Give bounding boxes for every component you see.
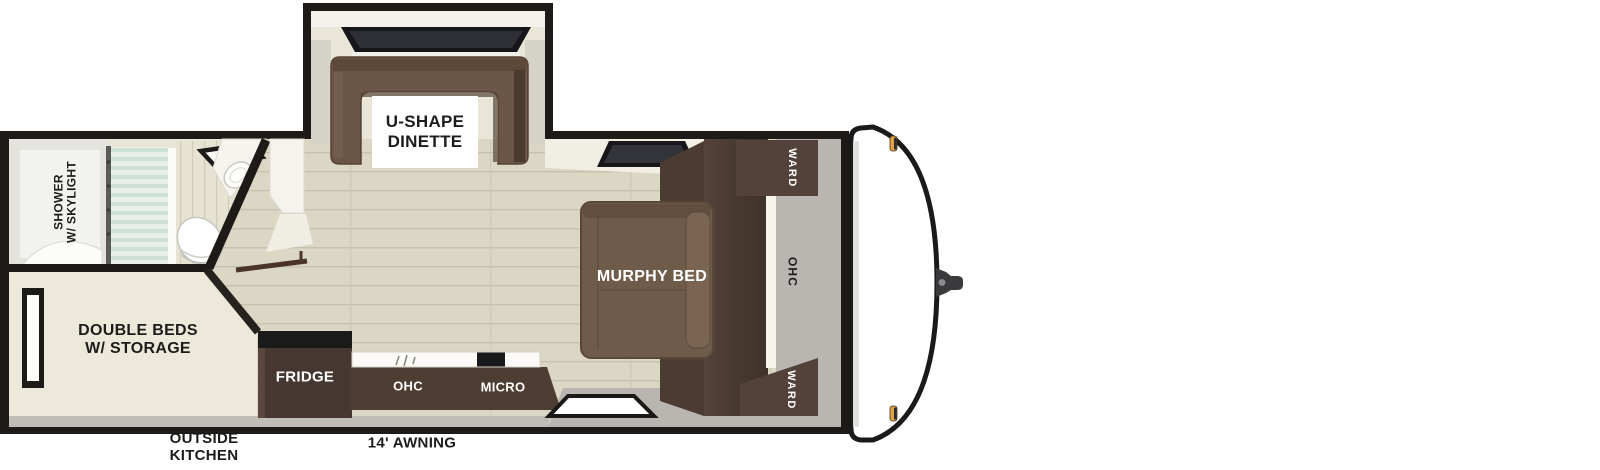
- kitchen-counter: [352, 352, 540, 367]
- entry-step: [549, 396, 654, 416]
- micro-label: MICRO: [481, 381, 526, 396]
- ohc-strip: [766, 190, 776, 368]
- fridge-label: FRIDGE: [276, 370, 334, 387]
- ward-cabinet-top: [736, 140, 818, 196]
- shower-glass: [110, 147, 168, 264]
- dinette-label: U-SHAPE DINETTE: [372, 96, 478, 168]
- double-beds-label: DOUBLE BEDS W/ STORAGE: [78, 322, 198, 358]
- murphy-bed-label: MURPHY BED: [597, 268, 707, 286]
- awning-label: 14' AWNING: [368, 436, 457, 453]
- kitchen-cabinet: [350, 367, 561, 410]
- kitchen-ohc-label: OHC: [393, 380, 423, 395]
- floorplan-drawing: [0, 0, 1600, 470]
- dinette-label-line1: U-SHAPE: [386, 112, 465, 132]
- outside-kitchen-label: OUTSIDE KITCHEN: [170, 431, 239, 465]
- cooktop: [477, 353, 505, 367]
- floorplan-canvas: U-SHAPE DINETTE SHOWER W/ SKYLIGHT DOUBL…: [0, 0, 1600, 470]
- ward-bottom-label: WARD: [785, 370, 797, 410]
- dinette-label-line2: DINETTE: [388, 132, 463, 152]
- wardrobe-column: [270, 139, 304, 213]
- ward-top-label: WARD: [786, 148, 798, 188]
- front-cap: [851, 127, 963, 440]
- shower-label: SHOWER W/ SKYLIGHT: [53, 161, 80, 243]
- bathroom-wall: [0, 264, 211, 273]
- front-ohc-label: OHC: [785, 257, 798, 287]
- marker-light-bottom: [890, 406, 897, 421]
- marker-light-top: [890, 136, 897, 151]
